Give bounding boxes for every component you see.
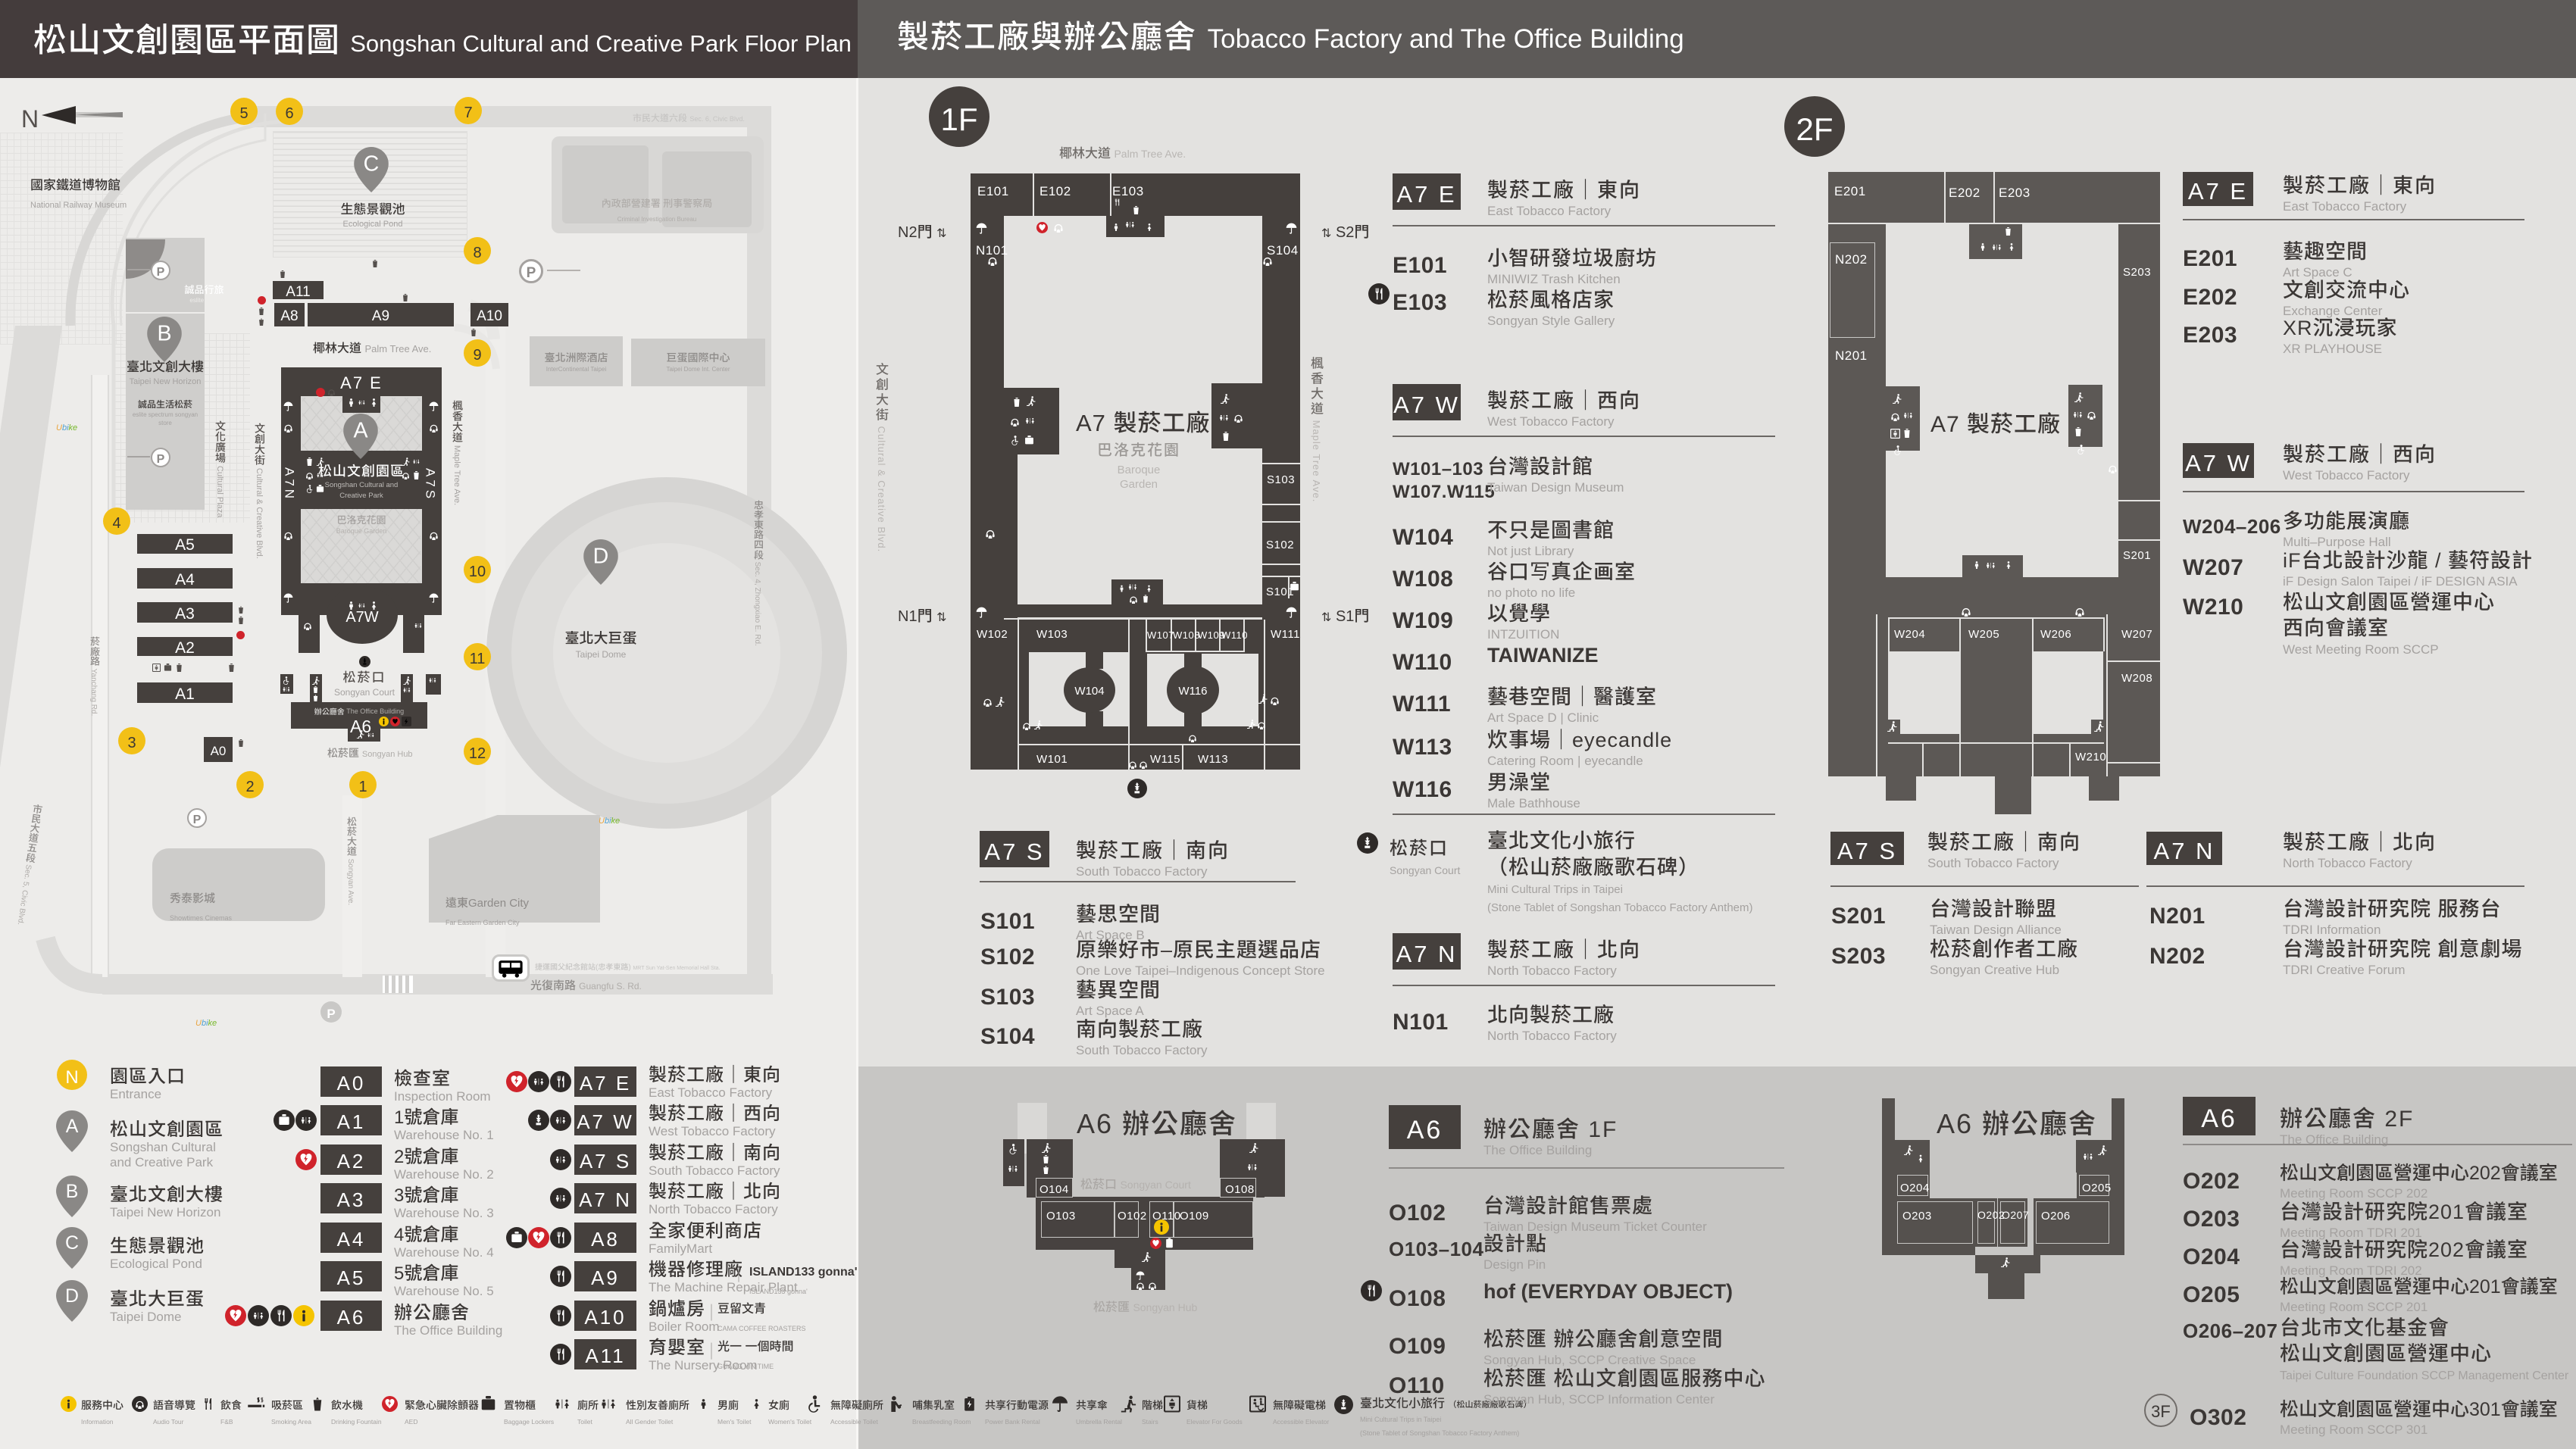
svg-text:D: D (593, 544, 609, 568)
svg-text:B: B (66, 1181, 79, 1202)
svg-text:A: A (66, 1116, 79, 1137)
svg-text:D: D (65, 1285, 79, 1307)
svg-text:B: B (157, 321, 171, 345)
svg-text:A: A (353, 418, 367, 442)
svg-text:C: C (65, 1232, 79, 1254)
svg-text:C: C (364, 151, 380, 176)
